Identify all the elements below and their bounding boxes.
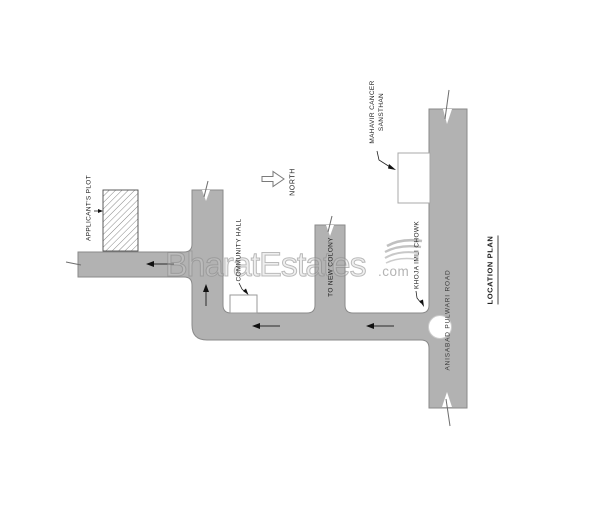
applicants-plot-leader-arrow-icon [98,209,103,213]
mahavir-cancer-sansthan-label: MAHAVIR CANCER SANSTHAN [368,80,386,143]
anisabad-pulwari-road-label: ANISABAD PULWARI ROAD [444,270,453,371]
khoja-leader-arrow-icon [420,300,425,308]
location-plan-canvas: BharatEstates .com APPLICANT'S PLOT NORT… [0,0,604,520]
mahavir-label-line2: SANSTHAN [377,80,386,143]
khoja-imli-chowk-label: KHOJA IMLI CHOWK [413,221,422,289]
north-label: NORTH [289,168,298,196]
north-arrow-icon [262,172,284,187]
applicants-plot-shape [103,190,138,251]
mahavir-cancer-building [398,153,430,203]
watermark: BharatEstates .com [165,238,435,290]
mahavir-leader [377,151,390,167]
community-hall-building [230,295,257,313]
location-plan-title: LOCATION PLAN [486,236,499,305]
to-new-colony-label: TO NEW COLONY [327,237,336,297]
mahavir-label-line1: MAHAVIR CANCER [368,80,377,143]
watermark-suffix-text: .com [378,264,409,279]
community-hall-label: COMMUNITY HALL [235,219,244,282]
applicants-plot-label: APPLICANT'S PLOT [85,175,94,241]
mahavir-leader-arrow-icon [388,164,396,170]
